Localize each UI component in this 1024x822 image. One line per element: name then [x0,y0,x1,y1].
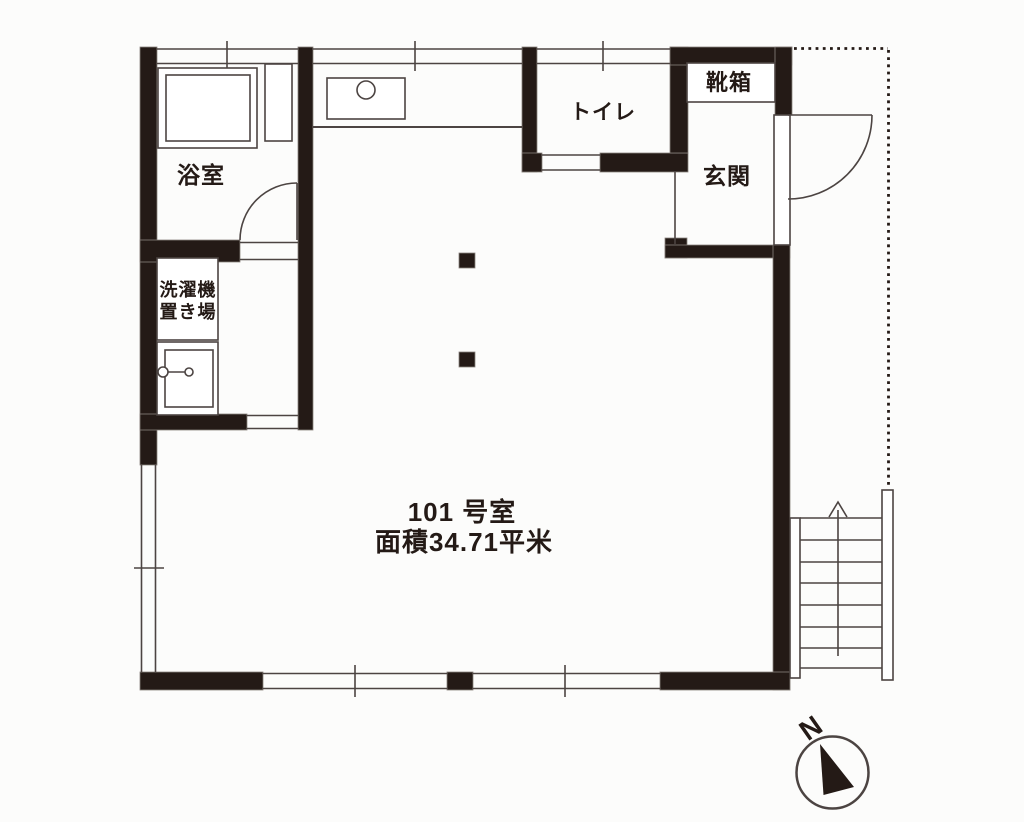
bath-counter [265,64,292,141]
pillar [459,352,475,367]
stairs-left-rail [790,518,800,678]
unit-number-label: 101 号室 [408,497,517,527]
washbasin-faucet-knob [158,367,168,377]
compass-needle [820,744,854,795]
door-opening [542,155,600,170]
window [134,465,164,672]
stairs [790,490,893,680]
door-openings [240,155,600,429]
doors [240,115,872,245]
floor-plan-svg: N 浴室 洗濯機 置き場 トイレ 靴箱 玄関 101 号室 面積34.71平米 [0,0,1024,822]
laundry-label-line1: 洗濯機 [160,279,217,300]
stair-steps [800,518,882,668]
bathtub-inner [166,75,250,141]
compass-icon: N [794,709,869,809]
unit-area-label: 面積34.71平米 [375,527,553,557]
entrance-label: 玄関 [703,163,751,189]
toilet-label: トイレ [570,101,636,124]
wall-segment [665,245,790,258]
entrance-door-frame [774,115,790,245]
entrance-door-arc [788,115,872,199]
bathroom-door-arc [240,183,297,240]
door-opening [247,416,298,429]
wall-segment [447,672,473,690]
floor-plan: N 浴室 洗濯機 置き場 トイレ 靴箱 玄関 101 号室 面積34.71平米 [0,0,1024,822]
wall-segment [522,153,542,172]
wall-segment [660,672,790,690]
wall-segment [140,672,263,690]
kitchen-faucet-icon [357,81,375,99]
washbasin-inner [165,350,213,407]
wall-segment [140,414,247,430]
entrance-door [774,115,872,245]
window [473,665,660,697]
north-label: N [794,709,829,747]
wall-segment [773,245,790,690]
wall-segment [298,47,313,430]
door-opening [240,243,298,260]
washbasin-faucet-knob [185,368,193,376]
bathroom-label: 浴室 [177,162,225,188]
wall-segment [600,153,688,172]
stairs-up-arrow-icon [829,502,847,656]
window [263,665,447,697]
window [313,41,522,71]
laundry-label-line2: 置き場 [160,302,217,322]
pillar [459,253,475,268]
window [537,41,670,71]
bathroom-door [240,183,297,240]
stairs-right-rail [882,490,893,680]
shoe-cabinet-label: 靴箱 [706,70,752,95]
wall-segment [775,47,792,115]
